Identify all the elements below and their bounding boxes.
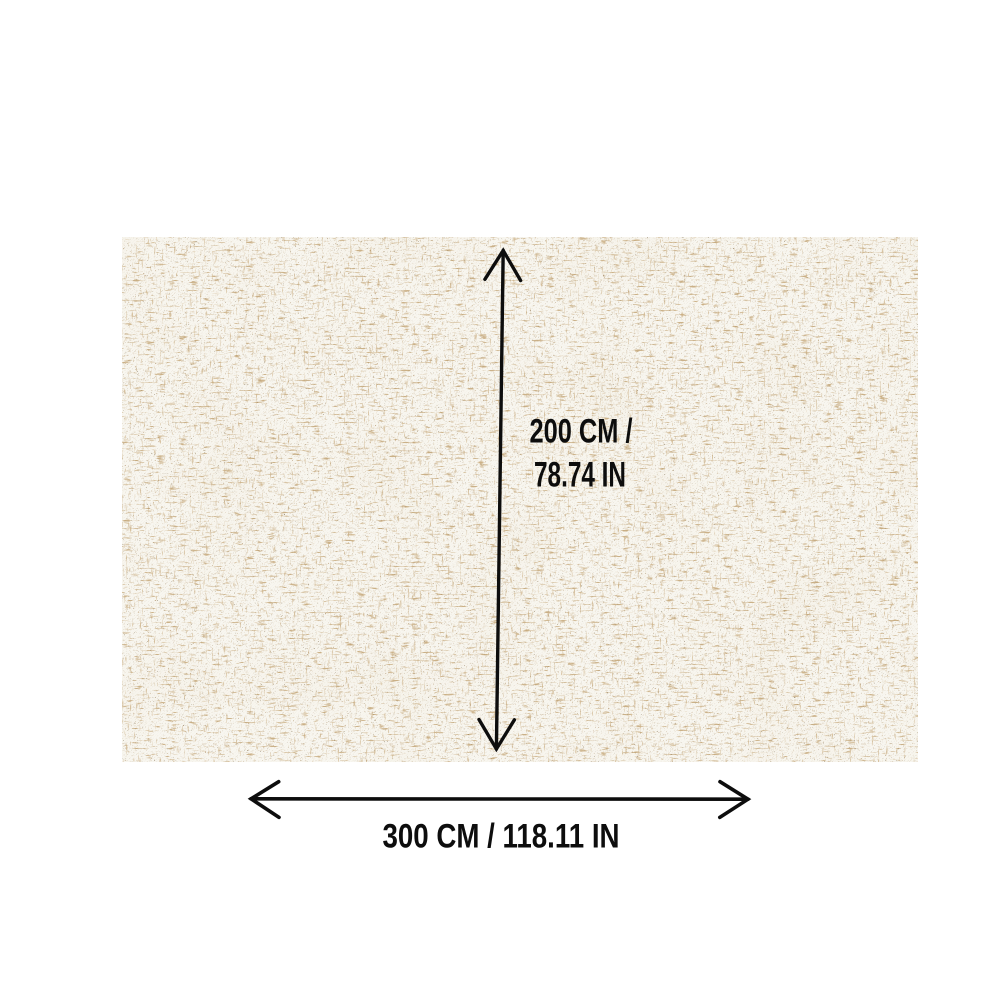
svg-text:78.74 IN: 78.74 IN: [534, 455, 626, 495]
svg-text:200 CM /: 200 CM /: [530, 413, 633, 451]
svg-text:300 CM / 118.11 IN: 300 CM / 118.11 IN: [383, 818, 620, 856]
